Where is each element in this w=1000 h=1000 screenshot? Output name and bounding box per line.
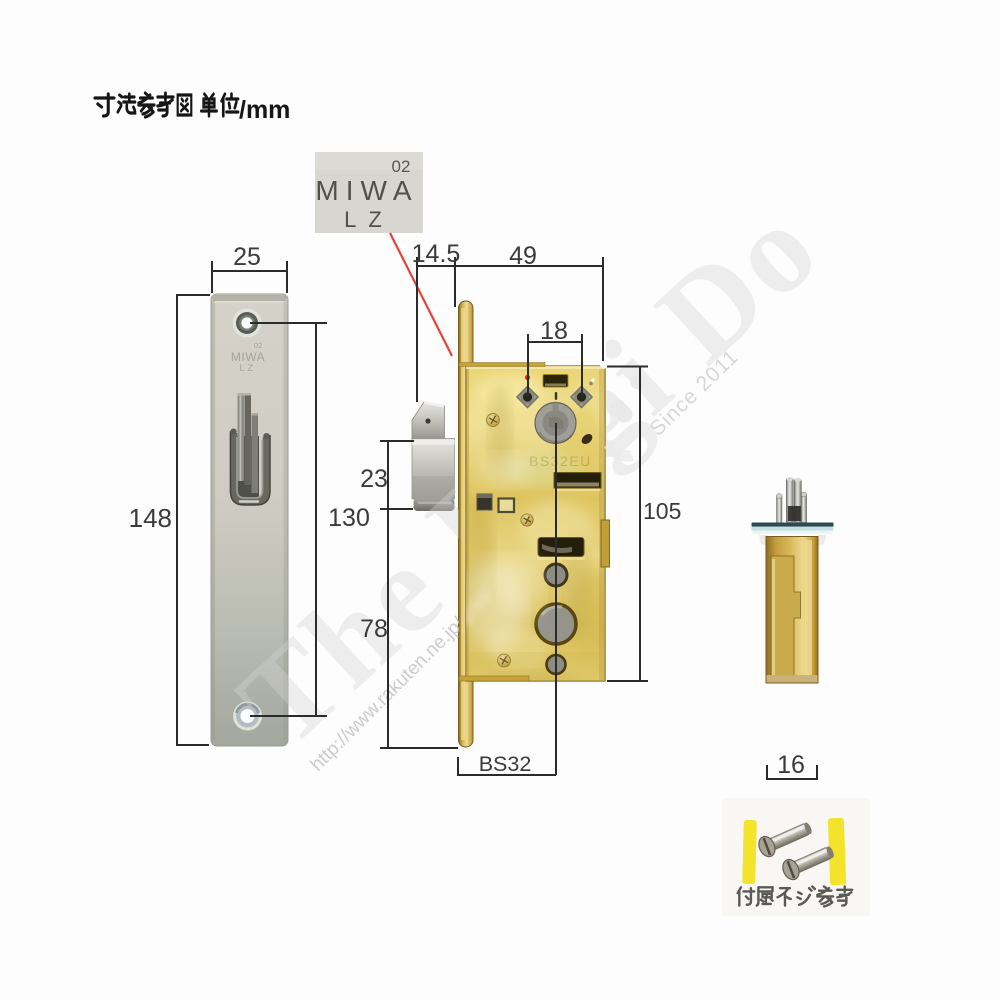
- svg-text:BS32: BS32: [479, 752, 532, 776]
- svg-text:02: 02: [254, 341, 262, 350]
- svg-text:MIWA: MIWA: [231, 350, 265, 364]
- svg-text:105: 105: [643, 498, 681, 524]
- svg-text:148: 148: [129, 503, 172, 533]
- svg-text:78: 78: [360, 615, 388, 643]
- svg-text:25: 25: [233, 243, 261, 271]
- svg-text:49: 49: [509, 242, 537, 270]
- svg-text:02: 02: [392, 157, 411, 176]
- svg-text:MIWA: MIWA: [315, 175, 418, 206]
- svg-text:14.5: 14.5: [412, 240, 461, 268]
- svg-text:16: 16: [777, 751, 805, 779]
- svg-text:LZ: LZ: [239, 363, 255, 374]
- svg-text:/mm: /mm: [239, 96, 290, 124]
- svg-text:23: 23: [360, 465, 388, 493]
- svg-text:130: 130: [328, 504, 370, 532]
- svg-text:18: 18: [540, 317, 568, 345]
- svg-text:LZ: LZ: [344, 207, 394, 232]
